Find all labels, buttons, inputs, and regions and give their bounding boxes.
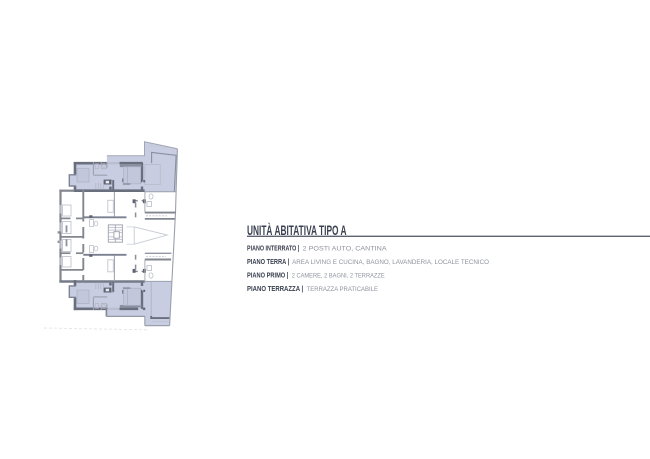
svg-text:PIANO INTERRATO |: PIANO INTERRATO | <box>247 246 299 253</box>
svg-text:PIANO TERRAZZA |: PIANO TERRAZZA | <box>247 286 303 293</box>
svg-text:UNITÀ ABITATIVA TIPO A: UNITÀ ABITATIVA TIPO A <box>247 222 347 238</box>
svg-text:TERRAZZA PRATICABILE: TERRAZZA PRATICABILE <box>307 286 379 293</box>
svg-text:PIANO TERRA |: PIANO TERRA | <box>247 259 289 266</box>
svg-text:2 POSTI AUTO, CANTINA: 2 POSTI AUTO, CANTINA <box>303 246 387 253</box>
svg-text:AREA LIVING E CUCINA, BAGNO, L: AREA LIVING E CUCINA, BAGNO, LAVANDERIA,… <box>292 259 489 266</box>
svg-text:PIANO PRIMO |: PIANO PRIMO | <box>247 272 288 279</box>
svg-text:2 CAMERE, 2 BAGNI, 2 TERRAZZE: 2 CAMERE, 2 BAGNI, 2 TERRAZZE <box>292 272 385 279</box>
